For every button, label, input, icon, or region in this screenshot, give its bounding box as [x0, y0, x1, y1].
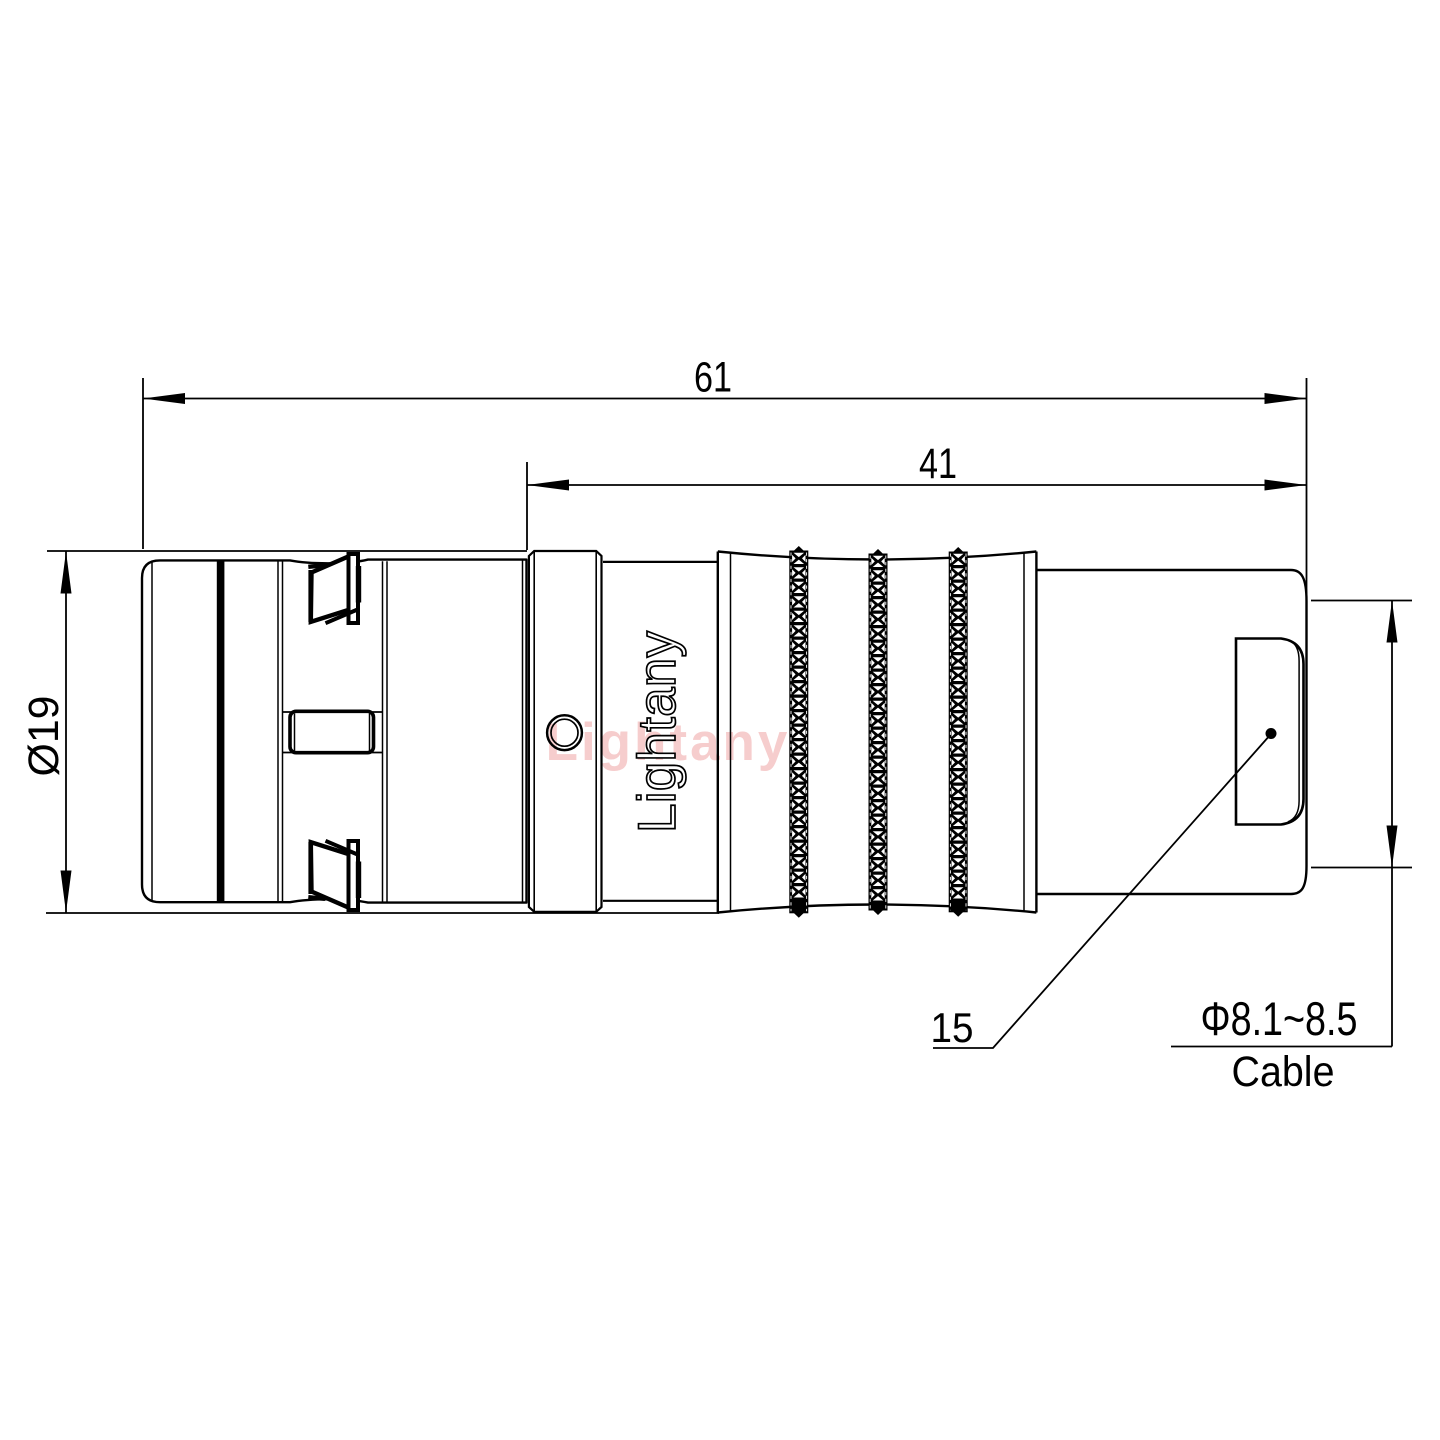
- svg-text:Cable: Cable: [1232, 1048, 1335, 1096]
- svg-text:Lightany: Lightany: [628, 631, 687, 834]
- svg-text:41: 41: [919, 440, 957, 488]
- svg-text:61: 61: [694, 354, 732, 402]
- svg-text:15: 15: [931, 1004, 974, 1051]
- svg-text:Ø19: Ø19: [20, 696, 68, 777]
- svg-text:Φ8.1~8.5: Φ8.1~8.5: [1201, 992, 1358, 1045]
